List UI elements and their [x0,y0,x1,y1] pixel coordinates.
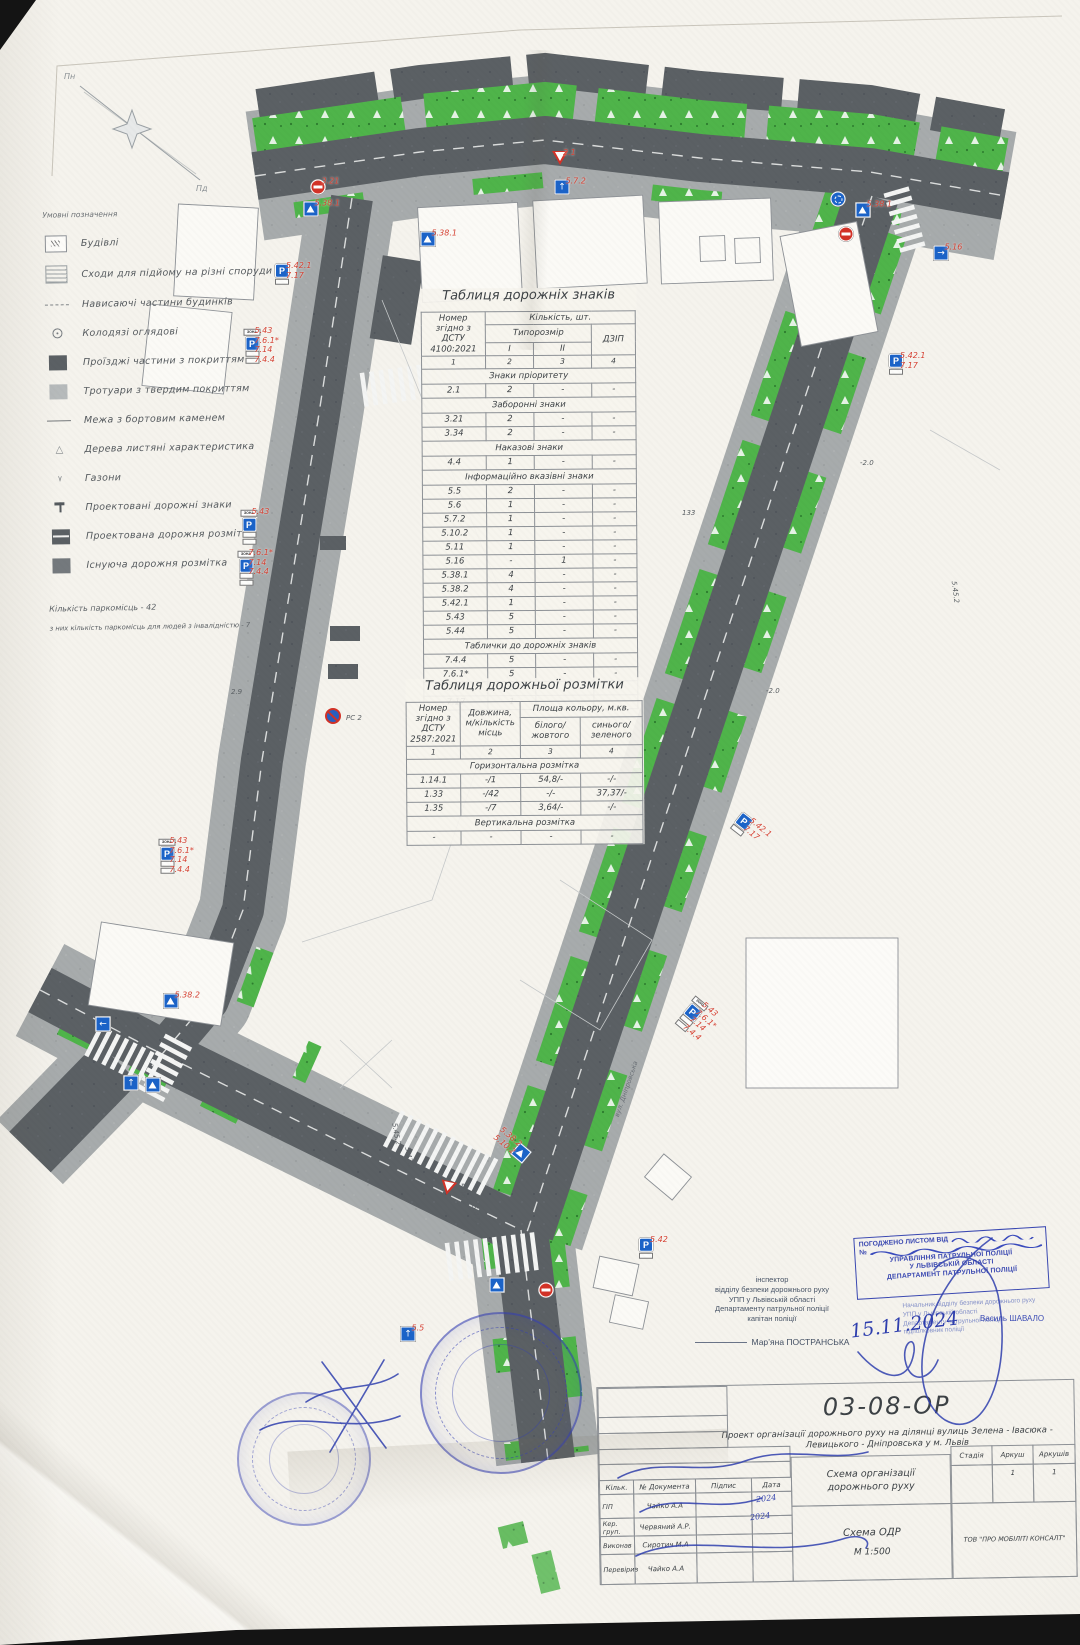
new-marking-swatch [48,529,74,544]
round-sign [831,192,846,207]
no-entry-sign: 3.21 [311,180,326,195]
no-stopping-icon [325,708,341,724]
legend-notes: Кількість паркомісць - 42 з них кількіст… [49,594,350,638]
parking-plate-sign: P5.42.17.17 [275,264,289,285]
sign-number-label: 5.38.1 [867,200,892,210]
stage-header: Стадія [950,1445,992,1466]
sign-number-label: 5.437.6.1*7.147.4.4 [170,836,194,874]
crosswalk-sign [490,1278,505,1293]
sign-number-label: 5.42 [650,1235,668,1245]
crosswalk-icon [146,1078,161,1093]
sign-number-label: 5.437.6.1*7.147.4.4 [255,326,279,364]
legend-item: Існуюча дорожня розмітка [48,552,348,573]
legend-item: Колодязі оглядові [44,320,344,341]
one-way-sign: ↑5.7.2 [555,180,570,195]
road-signs-table: Номер згідно з ДСТУ 4100:2021 Кількість,… [421,310,639,710]
table-section-row: Заборонні знаки [422,397,636,413]
building-swatch [43,235,69,252]
legend-item-label: Будівлі [81,237,119,249]
officer-name: Мар’яна ПОСТРАНСЬКА [686,1337,858,1348]
legend-item-label: Межа з бортовим каменем [84,412,225,425]
blue-arrow-sign: →5.16 [934,246,949,261]
no-entry-icon [839,227,854,242]
road-markings-table: Номер згідно з ДСТУ 2587:2021 Довжина, м… [406,700,644,845]
ref-label: 133 [682,509,695,517]
table-section-row: Знаки пріоритету [422,368,636,384]
existing-marking-swatch [48,558,74,573]
signature-line [695,1342,747,1343]
legend-item: △Дерева листяні характеристика [46,436,346,457]
table-section-row: Інформаційно вказівні знаки [422,469,636,485]
legend-item: ٧Газони [47,465,347,486]
blue-arrow-sign: ↑5.5 [401,1327,416,1342]
zone-parking-sign: ЗОНАP5.437.6.1*7.147.4.4 [244,329,261,364]
legend-item: Проектована дорожня розмітка [48,523,348,544]
table-row: 5.10.21-- [423,526,637,541]
scanned-sheet: Пн Пд Умовні позначення БудівліСходи для… [0,0,1080,1645]
blue-arrow-sign: ↑ [124,1076,139,1091]
sign-swatch [47,502,73,512]
scheme-cell: Схема ОДР М 1:500 [791,1503,952,1582]
table-row: 5.111-- [423,540,637,555]
sign-plate [639,1252,653,1258]
zone-parking-sign: ЗОНАP5.437.6.1*7.147.4.4 [159,839,176,874]
col-header: синього/ зеленого [580,716,642,744]
sheet-header: Аркуш [991,1445,1033,1466]
col-header: Номер згідно з ДСТУ 2587:2021 [406,702,460,746]
sign-plate [242,532,256,538]
table-row: 4.41-- [422,455,636,470]
table-section-row: Таблички до дорожніх знаків [423,638,637,654]
crosswalk-icon [490,1278,505,1293]
zone-parking-sign: ЗОНАP5.43 [241,510,258,545]
sign-plate [239,579,253,585]
company: ТОВ "ПРО МОБІЛІТІ КОНСАЛТ" [951,1501,1077,1579]
legend-item-label: Газони [85,472,121,484]
sign-number-label: 5.7.2 [566,177,586,187]
sign-number-label: 7.6.1*7.147.4.4 [249,548,273,577]
well-swatch [44,328,70,338]
legend-item-label: Сходи для підйому на різні споруди [81,265,272,279]
sign-number-label: 5.43 [252,507,270,517]
dashed-line-swatch [44,304,70,305]
col-header: Довжина, м/кількість місць [460,702,520,746]
legend-item-label: Проектовані дорожні знаки [85,499,232,513]
markings-table-body: 1234Горизонтальна розмітка1.14.1-/154,8/… [406,744,643,845]
signs-table-title: Таблиця дорожніх знаків [421,287,637,304]
legend-item: Будівлі [43,230,343,252]
tree-swatch: △ [46,444,72,455]
sign-number-label: 5.42.17.17 [900,351,925,370]
sheets-value: 1 [1033,1463,1077,1503]
no-entry-sign [839,227,854,242]
legend-item: Тротуари з твердим покриттям [45,378,345,399]
lawn-swatch: ٧ [47,474,73,483]
table-row: 2.12-- [422,383,636,398]
road-markings-table-wrap: Таблиця дорожньої розмітки Номер згідно … [405,677,644,845]
legend-item: Межа з бортовим каменем [46,407,346,428]
legend-item-label: Існуюча дорожня розмітка [86,557,227,570]
give-way-sign [439,1179,458,1196]
chief-name: Василь ШАВАЛО [980,1314,1044,1323]
col-header: Номер згідно з ДСТУ 4100:2021 [421,312,485,356]
col-header: ДЗІП [591,324,635,355]
parking-plate-sign: P5.42 [639,1238,653,1259]
legend-item: Нависаючі частини будинків [44,291,344,312]
legend-item-label: Колодязі оглядові [82,326,178,339]
zone-parking-sign: ЗОНАP7.6.1*7.147.4.4 [238,551,255,586]
sidewalk-swatch [45,384,71,399]
legend-item-label: Дерева листяні характеристика [84,440,254,454]
col-header: Кількість, шт. [485,311,635,325]
sign-number-label: 5.16 [945,243,963,253]
arrow-icon: ↑ [124,1076,139,1091]
sheet-value: 1 [992,1464,1035,1504]
compass-north-label: Пн [64,72,75,81]
arrow-icon: ← [96,1017,111,1032]
ref-label: РС 2 [346,714,362,722]
table-row: 5.7.21-- [423,512,637,527]
table-row: 5.61-- [422,498,636,513]
parking-icon: P [242,517,256,531]
legend-item: Проектовані дорожні знаки [47,494,347,515]
no-entry-sign [539,1283,554,1298]
legend-item-label: Нависаючі частини будинків [82,296,233,310]
legend-item-label: Проектована дорожня розмітка [86,528,254,542]
sign-number-label: 3.21 [322,177,340,187]
table-section-row: Вертикальна розмітка [407,814,643,831]
legend-items: БудівліСходи для підйому на різні споруд… [43,230,349,573]
give-way-sign: 2.1 [552,151,568,165]
sign-number-label: 5.42.17.17 [286,261,311,280]
crosswalk-sign: 5.38.1 [421,232,436,247]
table-section-row: Наказові знаки [422,440,636,456]
legend-item-label: Тротуари з твердим покриттям [83,383,249,397]
table-section-row: Горизонтальна розмітка [406,757,642,774]
table-row: 5.16-1- [423,554,637,569]
sign-number-label: 5.38.1 [432,229,457,239]
col-header: I [485,342,533,356]
legend-item: Проїзджі частини з покриттям [45,349,345,370]
paper-sheet: Пн Пд Умовні позначення БудівліСходи для… [0,0,1080,1645]
table-row: 7.4.45-- [424,653,638,668]
sign-number-label: 5.5 [412,1324,425,1334]
table-row: 5.52-- [422,484,636,499]
crosswalk-sign: 5.38.1 [304,202,319,217]
col-header: білого/ жовтого [520,717,580,745]
give-way-icon [439,1179,458,1196]
blue-arrow-sign: ← [96,1017,111,1032]
table-row: ---- [407,829,643,845]
crosswalk-sign [146,1078,161,1093]
table-row: 5.42.11-- [423,596,637,611]
title-block: 03-08-ОР Проект організації дорожнього р… [596,1379,1077,1585]
roadway-swatch [45,355,71,370]
stairs-swatch [43,265,69,283]
sheets-header: Аркушів [1032,1444,1075,1465]
round-stamp [237,1392,371,1526]
col-header: Типорозмір [485,324,591,342]
sign-number-label: 5.38.2 [175,991,200,1001]
roundabout-icon [831,192,846,207]
table-row: 3.212-- [422,412,636,427]
markings-table-title: Таблиця дорожньої розмітки [405,677,643,694]
curb-line-swatch [46,420,72,421]
table-row: 5.435-- [423,610,637,625]
ref-label: 2.9 [231,688,242,696]
stage-value [951,1464,994,1504]
table-row: 5.445-- [423,624,637,639]
table-row: 5.38.14-- [423,568,637,583]
signs-table-body: 1234Знаки пріоритету2.12--Заборонні знак… [421,355,637,710]
compass-south-label: Пд [196,184,208,193]
parking-plate-sign: P5.42.17.17 [889,354,903,375]
no-entry-icon [539,1283,554,1298]
scale: М 1:500 [854,1547,891,1558]
col-header: Площа кольору, м.кв. [520,701,642,718]
sign-plate [242,538,256,544]
col-header: II [533,342,591,356]
table-row: 3.342-- [422,426,636,441]
ref-label: -2.0 [860,459,874,467]
sign-number-label: 2.1 [563,148,576,158]
compass-rose [80,86,200,180]
legend-item-label: Проїзджі частини з покриттям [83,354,245,368]
no-stopping-sign [325,708,341,724]
round-stamp [420,1312,582,1474]
approval-stamp: ПОГОДЖЕНО ЛИСТОМ ВІД № УПРАВЛІННЯ ПАТРУЛ… [853,1226,1049,1300]
ref-label: -2.0 [766,687,780,695]
road-signs-table-wrap: Таблиця дорожніх знаків Номер згідно з Д… [421,287,640,710]
crosswalk-sign: 5.38.2 [164,994,179,1009]
table-row: 5.38.24-- [423,582,637,597]
document-type: Схема організації дорожнього руху [791,1454,952,1507]
crosswalk-sign: 5.38.1 [856,203,871,218]
officer-signature-block: інспектор відділу безпеки дорожнього рух… [686,1275,858,1348]
sign-number-label: 5.38.1 [315,199,340,209]
